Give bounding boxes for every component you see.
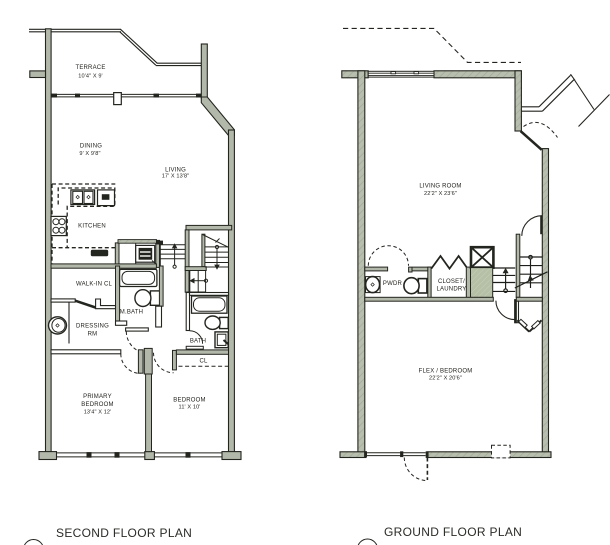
svg-text:SECOND FLOOR PLAN: SECOND FLOOR PLAN xyxy=(56,526,192,540)
svg-text:PRIMARY: PRIMARY xyxy=(83,394,112,400)
svg-text:LIVING ROOM: LIVING ROOM xyxy=(419,184,461,190)
svg-text:DRESSING: DRESSING xyxy=(76,323,109,329)
svg-text:10'4" X 9': 10'4" X 9' xyxy=(78,74,102,80)
svg-text:LIVING: LIVING xyxy=(165,167,186,173)
svg-text:BATH: BATH xyxy=(190,338,206,344)
svg-text:TERRACE: TERRACE xyxy=(75,65,105,71)
svg-text:13'4" X 12': 13'4" X 12' xyxy=(84,410,112,416)
svg-text:LAUNDRY: LAUNDRY xyxy=(437,286,467,292)
svg-text:KITCHEN: KITCHEN xyxy=(78,224,106,230)
svg-text:WALK-IN CL: WALK-IN CL xyxy=(76,281,113,287)
svg-text:M.BATH: M.BATH xyxy=(120,309,143,315)
svg-text:GROUND FLOOR PLAN: GROUND FLOOR PLAN xyxy=(384,525,522,539)
svg-text:DINING: DINING xyxy=(80,143,102,149)
svg-text:FLEX / BEDROOM: FLEX / BEDROOM xyxy=(419,368,473,374)
svg-text:RM: RM xyxy=(88,331,98,337)
svg-text:BEDROOM: BEDROOM xyxy=(173,397,205,403)
svg-text:BEDROOM: BEDROOM xyxy=(81,402,113,408)
svg-text:22'2" X 20'6": 22'2" X 20'6" xyxy=(429,376,462,382)
svg-text:22'2" X 23'6": 22'2" X 23'6" xyxy=(424,191,457,197)
svg-text:11' X 10': 11' X 10' xyxy=(179,405,201,411)
svg-text:PWDR: PWDR xyxy=(383,281,403,287)
svg-text:CLOSET/: CLOSET/ xyxy=(438,279,465,285)
svg-text:17' X 13'8": 17' X 13'8" xyxy=(162,174,190,180)
svg-text:CL: CL xyxy=(199,359,208,365)
svg-text:9' X 9'8": 9' X 9'8" xyxy=(79,151,100,157)
